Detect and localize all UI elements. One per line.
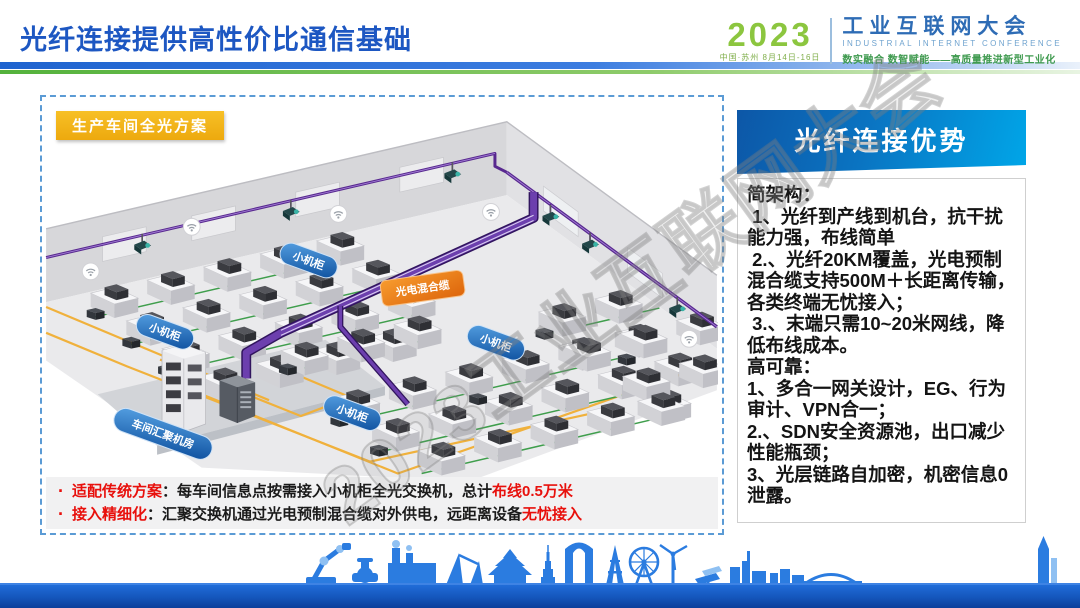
advantages-header: 光纤连接优势 — [737, 110, 1026, 174]
wind-turbine-silhouette — [660, 545, 687, 585]
advantage-line: 2.、光纤20KM覆盖，光电预制混合缆支持500M＋长距离传输，各类终端无忧接入… — [747, 249, 1016, 314]
advantage-line: 3、光层链路自加密，机密信息0泄露。 — [747, 464, 1016, 507]
scheme-label: 生产车间全光方案 — [56, 111, 224, 140]
eiffel-tower-silhouette — [606, 545, 624, 585]
footer-band — [0, 583, 1080, 608]
note-highlight: 布线0.5万米 — [492, 483, 573, 500]
conference-logo: 2023 中国·苏州 8月14日-16日 工业互联网大会 INDUSTRIAL … — [720, 16, 1062, 66]
logo-tagline: 数实融合 数智赋能——高质量推进新型工业化 — [842, 51, 1062, 66]
aggregation-cabinet — [219, 375, 255, 423]
wifi-icon — [183, 218, 200, 235]
note-row-adapt: 适配传统方案：每车间信息点按需接入小机柜全光交换机，总计布线0.5万米 — [72, 483, 718, 501]
note-label: 接入精细化 — [72, 506, 147, 523]
logo-year: 2023 — [720, 20, 821, 50]
advantage-line: 1、光纤到产线到机台，抗干扰能力强，布线简单 — [747, 206, 1016, 249]
city-skyline — [0, 533, 1080, 585]
note-label: 适配传统方案 — [72, 483, 162, 500]
advantage-line: 2.、SDN安全资源池，出口减少性能瓶颈； — [747, 421, 1016, 464]
logo-name-en: INDUSTRIAL INTERNET CONFERENCE — [842, 39, 1062, 48]
robot-arm-silhouette — [306, 543, 351, 585]
note-row-access: 接入精细化：汇聚交换机通过光电预制混合缆对外供电，远距离设备无忧接入 — [72, 506, 718, 524]
divider-green — [0, 70, 1080, 74]
wifi-icon — [483, 204, 500, 221]
advantage-line: 3.、末端只需10~20米网线，降低布线成本。 — [747, 313, 1016, 356]
refinery-silhouette — [730, 551, 766, 585]
slide: 光纤连接提供高性价比通信基础 2023 中国·苏州 8月14日-16日 工业互联… — [0, 0, 1080, 608]
logo-venue: 中国·苏州 8月14日-16日 — [720, 52, 821, 63]
pagoda-tower-silhouette — [541, 545, 555, 585]
valve-silhouette — [352, 558, 378, 583]
logo-year-block: 2023 中国·苏州 8月14日-16日 — [720, 20, 821, 63]
right-tower-silhouette — [1038, 536, 1057, 585]
logo-divider — [830, 18, 832, 64]
workshop-diagram-box: 小机柜 小机柜 小机柜 小机柜 车间汇聚机房 光电混合缆 — [40, 95, 724, 535]
notes-strip: 适配传统方案：每车间信息点按需接入小机柜全光交换机，总计布线0.5万米 接入精细… — [46, 477, 718, 529]
advantages-body: 简架构： 1、光纤到产线到机台，抗干扰能力强，布线简单 2.、光纤20KM覆盖，… — [737, 178, 1026, 523]
wifi-icon — [681, 330, 698, 347]
note-text: ：汇聚交换机通过光电预制混合缆对外供电，远距离设备 — [147, 506, 522, 523]
advantage-line: 1、多合一网关设计，EG、行为审计、VPN合一； — [747, 378, 1016, 421]
advantage-line: 简架构： — [747, 184, 1016, 206]
gate-arch-silhouette — [565, 543, 593, 586]
page-title: 光纤连接提供高性价比通信基础 — [20, 18, 412, 57]
note-text: ：每车间信息点按需接入小机柜全光交换机，总计 — [162, 483, 492, 500]
pagoda-temple-silhouette — [488, 549, 532, 585]
advantage-line: 高可靠： — [747, 356, 1016, 378]
logo-name-block: 工业互联网大会 INDUSTRIAL INTERNET CONFERENCE 数… — [842, 16, 1062, 66]
note-highlight: 无忧接入 — [522, 506, 582, 523]
factory-silhouette — [388, 540, 436, 585]
server-rack — [162, 345, 206, 432]
advantages-title: 光纤连接优势 — [794, 121, 968, 164]
ferris-wheel-silhouette — [630, 548, 658, 585]
logo-name-cn: 工业互联网大会 — [842, 16, 1062, 38]
wifi-icon — [330, 205, 347, 222]
factory-isometric-illustration: 小机柜 小机柜 小机柜 小机柜 车间汇聚机房 光电混合缆 — [42, 97, 718, 529]
crane-silhouette — [446, 553, 483, 585]
wifi-icon — [82, 263, 99, 280]
